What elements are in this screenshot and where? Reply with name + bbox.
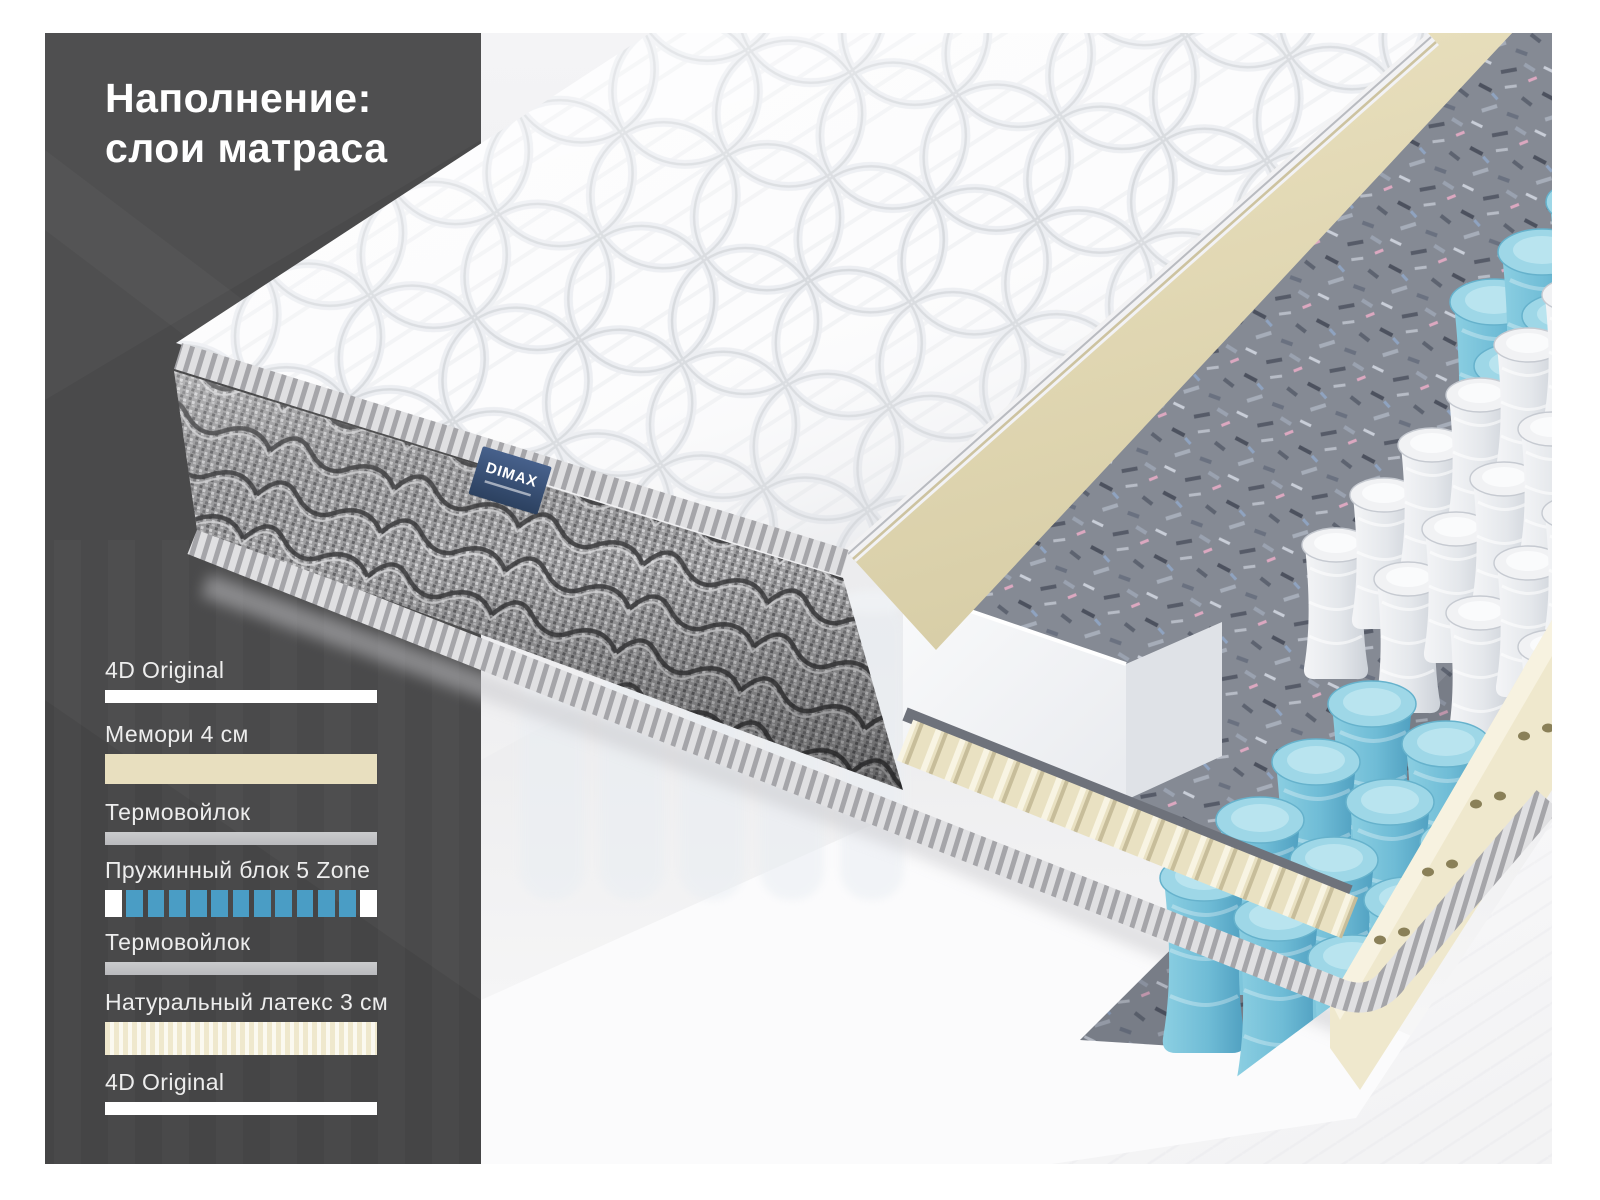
legend-swatch bbox=[105, 962, 377, 975]
legend-item-memory: Мемори 4 см bbox=[105, 721, 377, 784]
legend-item-4d-original-bottom: 4D Original bbox=[105, 1069, 377, 1115]
legend-item-thermofelt-lower: Термовойлок bbox=[105, 929, 377, 975]
legend-swatch bbox=[105, 1102, 377, 1115]
legend-item-latex: Натуральный латекс 3 см bbox=[105, 989, 377, 1055]
legend-swatch bbox=[105, 890, 377, 917]
legend-label: Термовойлок bbox=[105, 799, 377, 827]
legend-label: Натуральный латекс 3 см bbox=[105, 989, 377, 1017]
content-frame: DIMAX Наполнение: слои матраса 4D Origin… bbox=[45, 33, 1552, 1164]
legend-label: 4D Original bbox=[105, 657, 377, 685]
legend-swatch bbox=[105, 832, 377, 845]
legend-swatch bbox=[105, 754, 377, 784]
legend-label: Пружинный блок 5 Zone bbox=[105, 857, 377, 885]
legend-label: Мемори 4 см bbox=[105, 721, 377, 749]
legend-label: Термовойлок bbox=[105, 929, 377, 957]
legend-item-4d-original-top: 4D Original bbox=[105, 657, 377, 703]
legend-swatch bbox=[105, 690, 377, 703]
legend-label: 4D Original bbox=[105, 1069, 377, 1097]
legend-item-thermofelt-upper: Термовойлок bbox=[105, 799, 377, 845]
infographic-page: { "title": {"line1": "Наполнение:", "lin… bbox=[0, 0, 1600, 1200]
layers-legend: 4D Original Мемори 4 см Термовойлок Пруж… bbox=[105, 33, 377, 1164]
legend-swatch bbox=[105, 1022, 377, 1055]
legend-item-spring-block: Пружинный блок 5 Zone bbox=[105, 857, 377, 917]
